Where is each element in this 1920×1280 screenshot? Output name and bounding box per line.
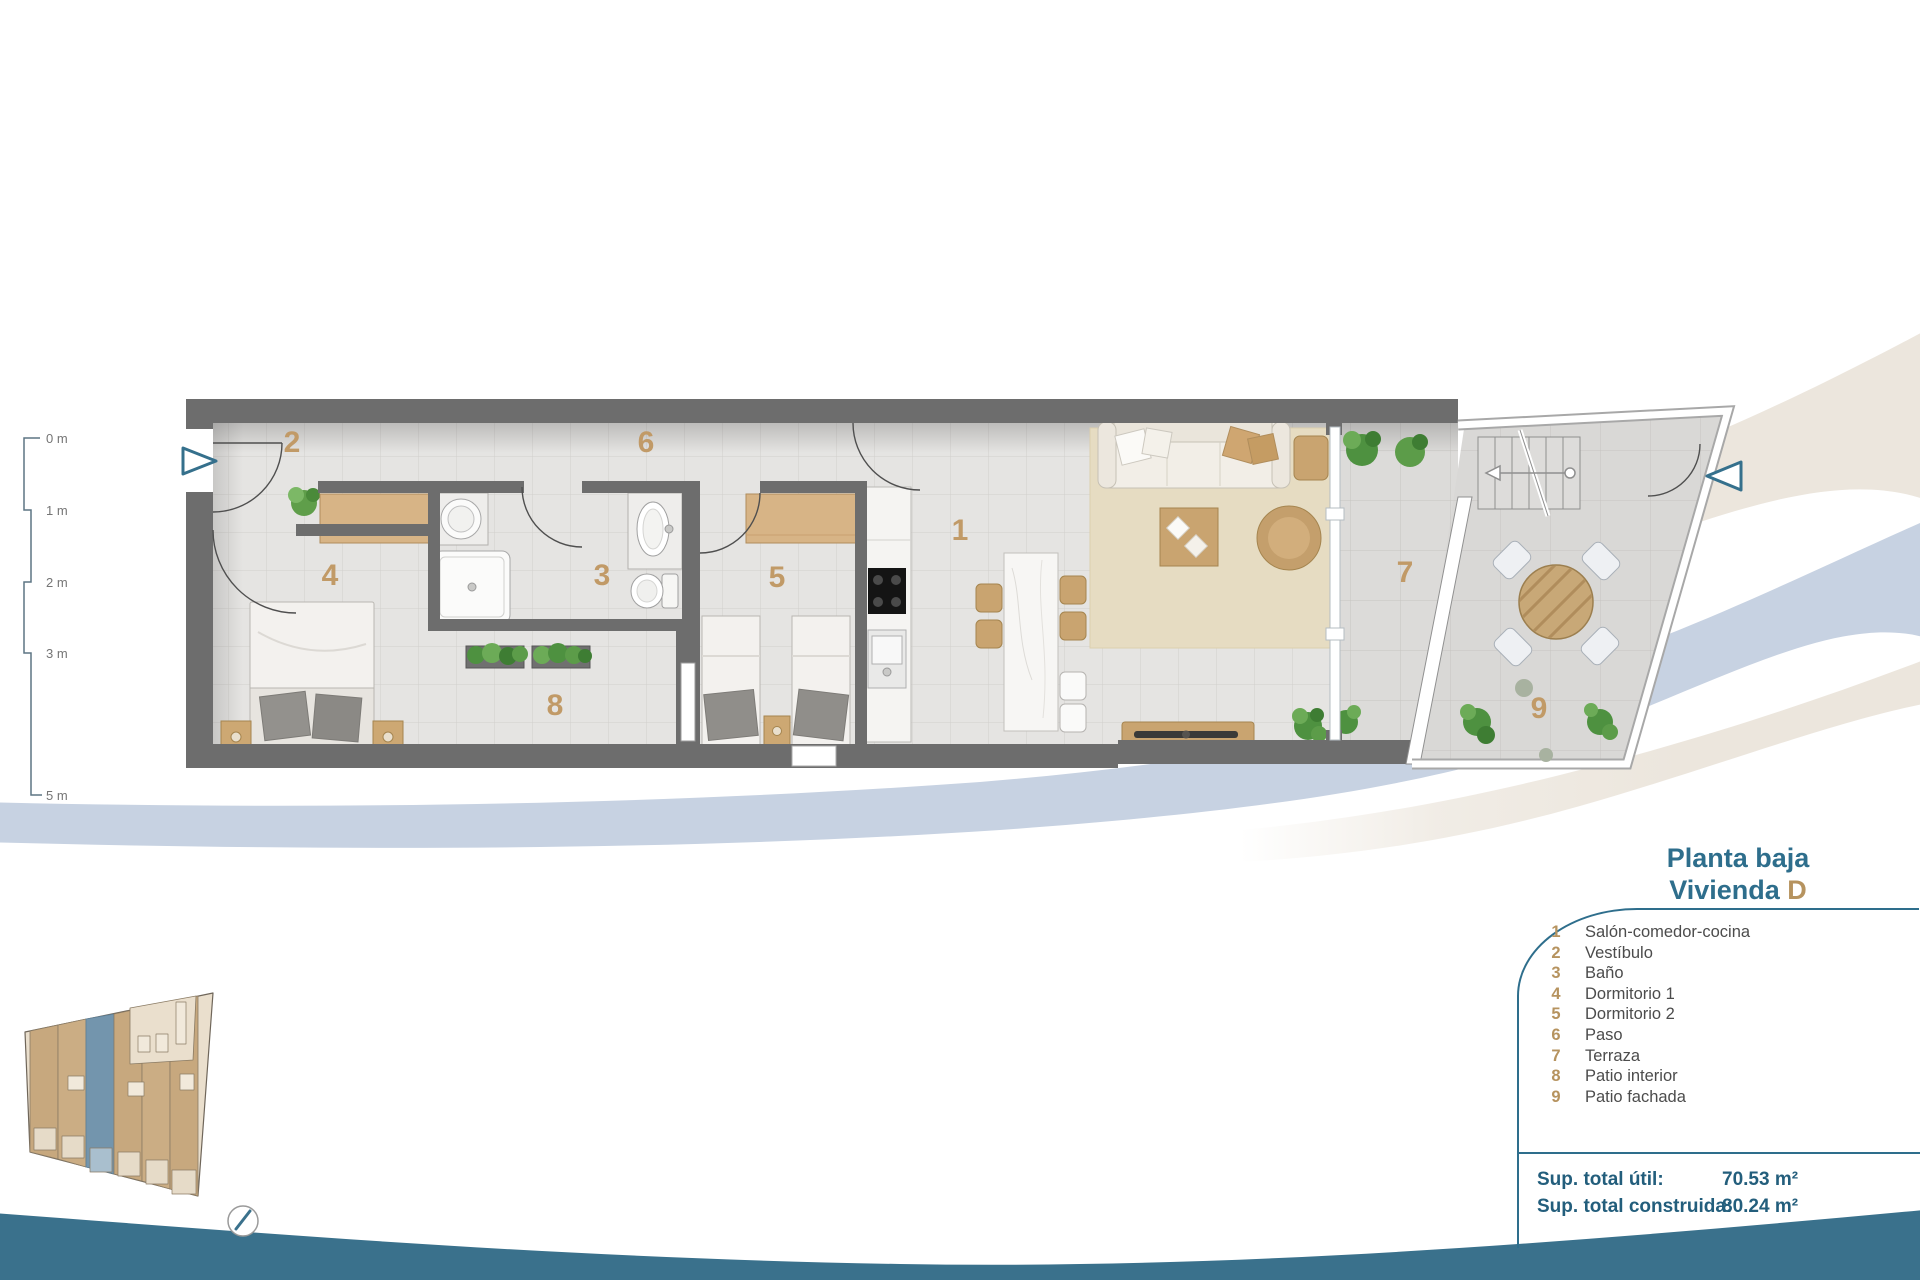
room-number-3: 3 [594,559,611,592]
compass-icon [228,1206,258,1236]
legend-item-number: 5 [1543,1004,1569,1025]
legend-item-label: Baño [1585,964,1624,982]
total-built-label: Sup. total construida: [1537,1196,1732,1217]
room-number-5: 5 [769,561,786,594]
legend-item-label: Patio interior [1585,1067,1678,1085]
room-number-2: 2 [284,426,301,459]
title-floor: Planta baja [1556,842,1920,874]
scale-label-3m: 3 m [46,646,68,661]
scale-label-0m: 0 m [46,431,68,446]
legend-item-label: Paso [1585,1026,1623,1044]
total-useful-label: Sup. total útil: [1537,1169,1664,1190]
legend-item-number: 9 [1543,1087,1569,1108]
surface-totals: Sup. total útil: 70.53 m² Sup. total con… [1537,1166,1907,1220]
legend-item-number: 7 [1543,1046,1569,1067]
room-number-4: 4 [322,559,339,592]
room-number-8: 8 [547,689,564,722]
bedroom1-bed [250,602,374,752]
total-built-value: 80.24 m² [1722,1193,1798,1220]
legend-item: 9Patio fachada [1543,1087,1750,1108]
armchair [1257,506,1321,570]
legend-item-number: 6 [1543,1025,1569,1046]
room-legend: 1Salón-comedor-cocina 2Vestíbulo 3Baño 4… [1543,922,1750,1107]
site-plan [25,993,213,1196]
legend-item-number: 3 [1543,963,1569,984]
scale-label-5m: 5 m [46,788,68,803]
legend-item: 3Baño [1543,963,1750,984]
kitchen-column [863,487,911,742]
unit-letter: D [1787,875,1807,905]
legend-item: 7Terraza [1543,1046,1750,1067]
legend-item: 6Paso [1543,1025,1750,1046]
room-number-9: 9 [1531,692,1548,725]
room-number-6: 6 [638,426,655,459]
sofa-side-table [1294,436,1328,480]
coffee-table [1160,508,1218,566]
stairs [1478,430,1580,516]
room-number-7: 7 [1397,556,1414,589]
legend-item-number: 4 [1543,984,1569,1005]
legend-item: 1Salón-comedor-cocina [1543,922,1750,943]
bottom-wall-vent [792,746,836,766]
patio-window [681,663,695,741]
total-useful-value: 70.53 m² [1722,1166,1798,1193]
legend-item: 5Dormitorio 2 [1543,1004,1750,1025]
legend-item: 4Dormitorio 1 [1543,984,1750,1005]
total-built-row: Sup. total construida: 80.24 m² [1537,1193,1907,1220]
panel-divider [1517,1152,1920,1154]
legend-item-label: Dormitorio 2 [1585,1005,1675,1023]
page-title: Planta baja Vivienda D [1556,842,1920,906]
legend-item-number: 1 [1543,922,1569,943]
legend-item: 8Patio interior [1543,1066,1750,1087]
bedroom2-wardrobe [746,494,858,543]
legend-item-label: Dormitorio 1 [1585,985,1675,1003]
title-unit: Vivienda D [1556,874,1920,906]
legend-item: 2Vestíbulo [1543,943,1750,964]
legend-item-label: Terraza [1585,1047,1640,1065]
scale-label-1m: 1 m [46,503,68,518]
legend-item-label: Vestíbulo [1585,944,1653,962]
total-useful-row: Sup. total útil: 70.53 m² [1537,1166,1907,1193]
legend-item-number: 2 [1543,943,1569,964]
page: 1 2 3 4 5 6 7 8 9 0 m 1 m 2 m 3 m 5 m [0,0,1920,1280]
scale-bar: 0 m 1 m 2 m 3 m 5 m [24,431,68,803]
sofa [1098,422,1290,488]
legend-item-label: Patio fachada [1585,1088,1686,1106]
legend-item-label: Salón-comedor-cocina [1585,923,1750,941]
scale-label-2m: 2 m [46,575,68,590]
room-number-1: 1 [952,514,969,547]
legend-item-number: 8 [1543,1066,1569,1087]
